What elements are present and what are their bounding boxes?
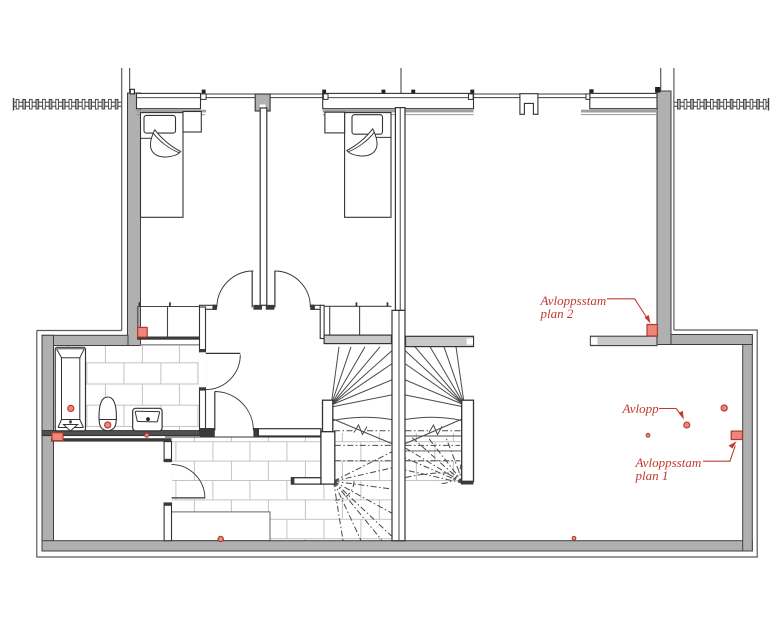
svg-text:Avlopp: Avlopp [622, 401, 660, 416]
svg-text:plan 1: plan 1 [635, 468, 669, 483]
svg-text:plan 2: plan 2 [540, 306, 574, 321]
